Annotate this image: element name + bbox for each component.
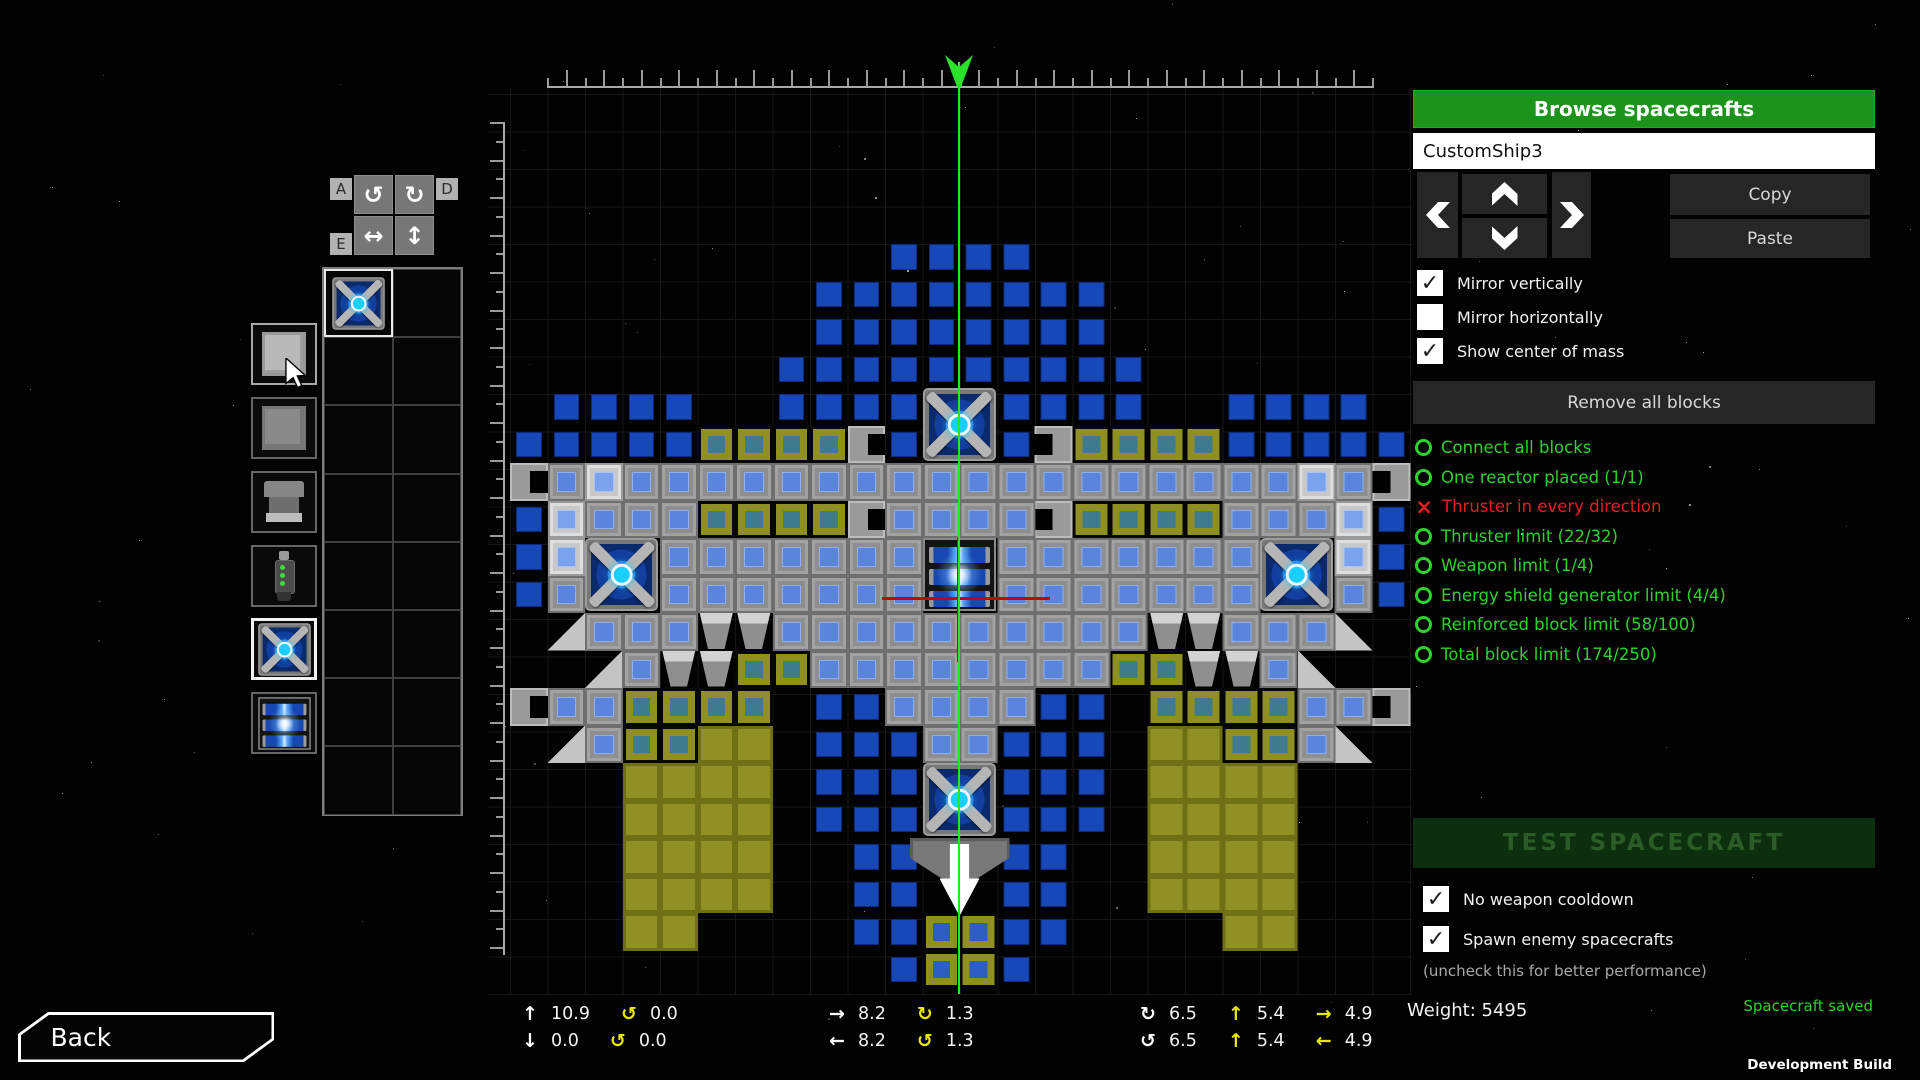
armored-hull[interactable] xyxy=(1148,463,1186,501)
armored-hull[interactable] xyxy=(735,463,773,501)
armored-hull[interactable] xyxy=(848,651,886,689)
armored-hull[interactable] xyxy=(810,613,848,651)
blue-block[interactable] xyxy=(1035,726,1073,764)
blue-block[interactable] xyxy=(998,426,1036,464)
olive-block[interactable] xyxy=(1223,913,1261,951)
remove-all-blocks-button[interactable]: Remove all blocks xyxy=(1413,381,1875,424)
blue-block[interactable] xyxy=(810,276,848,314)
inventory-cell-empty[interactable] xyxy=(324,405,393,473)
armored-hull[interactable] xyxy=(735,576,773,614)
armored-hull[interactable] xyxy=(885,463,923,501)
blue-block[interactable] xyxy=(773,351,811,389)
armored-hull[interactable] xyxy=(660,576,698,614)
blue-block[interactable] xyxy=(848,876,886,914)
thruster-olive[interactable] xyxy=(1148,501,1186,539)
blue-block[interactable] xyxy=(923,351,961,389)
thruster-olive[interactable] xyxy=(773,501,811,539)
blue-block[interactable] xyxy=(998,388,1036,426)
blue-block[interactable] xyxy=(1073,726,1111,764)
inventory-cell-empty[interactable] xyxy=(324,610,393,678)
armored-hull[interactable] xyxy=(885,651,923,689)
energy-shield-generator-block[interactable] xyxy=(585,538,658,611)
side-nozzle[interactable] xyxy=(1035,501,1073,539)
blue-block[interactable] xyxy=(1335,388,1373,426)
blue-block[interactable] xyxy=(960,351,998,389)
next-ship-button[interactable] xyxy=(1552,172,1591,258)
thruster-olive[interactable] xyxy=(660,688,698,726)
armored-hull[interactable] xyxy=(1335,463,1373,501)
armored-hull[interactable] xyxy=(585,688,623,726)
armored-hull[interactable] xyxy=(810,538,848,576)
inventory-cell-empty[interactable] xyxy=(393,269,462,337)
inventory-cell-empty[interactable] xyxy=(324,678,393,746)
armored-hull[interactable] xyxy=(1073,538,1111,576)
inventory-cell-empty[interactable] xyxy=(393,405,462,473)
blue-block[interactable] xyxy=(1035,913,1073,951)
blue-block[interactable] xyxy=(585,388,623,426)
light-hull[interactable] xyxy=(1298,463,1336,501)
blue-block[interactable] xyxy=(848,801,886,839)
armored-hull[interactable] xyxy=(960,501,998,539)
side-nozzle[interactable] xyxy=(1373,463,1411,501)
blue-block[interactable] xyxy=(848,688,886,726)
side-nozzle[interactable] xyxy=(848,501,886,539)
olive-block[interactable] xyxy=(1185,838,1223,876)
armored-hull[interactable] xyxy=(1223,538,1261,576)
blue-block[interactable] xyxy=(548,388,586,426)
blue-block[interactable] xyxy=(510,576,548,614)
thruster-olive[interactable] xyxy=(735,426,773,464)
blue-block[interactable] xyxy=(1035,763,1073,801)
armored-hull[interactable] xyxy=(885,501,923,539)
blue-block[interactable] xyxy=(1035,351,1073,389)
palette-item-thruster[interactable] xyxy=(251,471,317,533)
armored-hull[interactable] xyxy=(810,576,848,614)
armored-hull[interactable] xyxy=(1035,463,1073,501)
blue-block[interactable] xyxy=(623,388,661,426)
thruster-olive[interactable] xyxy=(1260,726,1298,764)
blue-block[interactable] xyxy=(1073,763,1111,801)
blue-block[interactable] xyxy=(885,313,923,351)
armored-hull[interactable] xyxy=(773,463,811,501)
armored-hull[interactable] xyxy=(923,613,961,651)
flip-vertical-button[interactable]: ↕ xyxy=(395,216,434,255)
blue-block[interactable] xyxy=(998,763,1036,801)
olive-block[interactable] xyxy=(698,838,736,876)
armored-hull[interactable] xyxy=(585,613,623,651)
blue-block[interactable] xyxy=(848,313,886,351)
olive-block[interactable] xyxy=(1260,838,1298,876)
armored-hull[interactable] xyxy=(1148,576,1186,614)
blue-block[interactable] xyxy=(885,388,923,426)
blue-block[interactable] xyxy=(810,801,848,839)
test-spacecraft-button[interactable]: TEST SPACECRAFT xyxy=(1413,818,1875,868)
ship-name-input[interactable] xyxy=(1413,133,1875,169)
paste-button[interactable]: Paste xyxy=(1670,219,1870,258)
thruster-olive[interactable] xyxy=(1260,688,1298,726)
thruster-olive[interactable] xyxy=(810,501,848,539)
armored-hull[interactable] xyxy=(698,538,736,576)
armored-hull[interactable] xyxy=(923,688,961,726)
armored-hull[interactable] xyxy=(1298,688,1336,726)
blue-block[interactable] xyxy=(1035,313,1073,351)
armored-hull[interactable] xyxy=(623,501,661,539)
blue-block[interactable] xyxy=(885,426,923,464)
armored-hull[interactable] xyxy=(660,613,698,651)
olive-block[interactable] xyxy=(660,838,698,876)
armored-hull[interactable] xyxy=(1073,651,1111,689)
blue-block[interactable] xyxy=(1373,576,1411,614)
armored-hull[interactable] xyxy=(1335,688,1373,726)
blue-block[interactable] xyxy=(773,388,811,426)
blue-block[interactable] xyxy=(998,238,1036,276)
olive-block[interactable] xyxy=(698,876,736,914)
armored-hull[interactable] xyxy=(585,501,623,539)
blue-block[interactable] xyxy=(810,763,848,801)
blue-block[interactable] xyxy=(998,951,1036,989)
blue-block[interactable] xyxy=(998,313,1036,351)
olive-block[interactable] xyxy=(623,838,661,876)
armored-hull[interactable] xyxy=(773,576,811,614)
blue-block[interactable] xyxy=(1035,688,1073,726)
side-nozzle[interactable] xyxy=(510,688,548,726)
armored-hull[interactable] xyxy=(1223,576,1261,614)
blue-block[interactable] xyxy=(998,801,1036,839)
olive-armored[interactable] xyxy=(923,951,961,989)
armored-hull[interactable] xyxy=(960,613,998,651)
armored-hull[interactable] xyxy=(998,688,1036,726)
armored-hull[interactable] xyxy=(923,463,961,501)
thruster-olive[interactable] xyxy=(1148,426,1186,464)
blue-block[interactable] xyxy=(1373,426,1411,464)
armored-hull[interactable] xyxy=(998,576,1036,614)
side-nozzle[interactable] xyxy=(848,426,886,464)
olive-block[interactable] xyxy=(1223,763,1261,801)
armored-hull[interactable] xyxy=(1185,538,1223,576)
blue-block[interactable] xyxy=(998,726,1036,764)
olive-block[interactable] xyxy=(1260,801,1298,839)
armored-hull[interactable] xyxy=(1185,576,1223,614)
thruster-olive[interactable] xyxy=(1148,688,1186,726)
olive-block[interactable] xyxy=(1260,763,1298,801)
blue-block[interactable] xyxy=(848,388,886,426)
blue-block[interactable] xyxy=(998,876,1036,914)
inventory-cell-empty[interactable] xyxy=(393,474,462,542)
blue-block[interactable] xyxy=(885,238,923,276)
light-hull[interactable] xyxy=(548,538,586,576)
thruster-olive[interactable] xyxy=(1223,688,1261,726)
thruster-olive[interactable] xyxy=(623,726,661,764)
armored-hull[interactable] xyxy=(960,651,998,689)
browse-spacecrafts-button[interactable]: Browse spacecrafts xyxy=(1413,90,1875,128)
blue-block[interactable] xyxy=(510,538,548,576)
olive-block[interactable] xyxy=(623,801,661,839)
thruster-olive[interactable] xyxy=(1223,726,1261,764)
olive-block[interactable] xyxy=(660,913,698,951)
blue-block[interactable] xyxy=(960,238,998,276)
armored-hull[interactable] xyxy=(548,463,586,501)
armored-hull[interactable] xyxy=(1298,726,1336,764)
thruster-olive[interactable] xyxy=(735,501,773,539)
armored-hull[interactable] xyxy=(998,501,1036,539)
armored-hull[interactable] xyxy=(960,688,998,726)
blue-block[interactable] xyxy=(848,351,886,389)
blue-block[interactable] xyxy=(885,726,923,764)
armored-hull[interactable] xyxy=(810,463,848,501)
armored-hull[interactable] xyxy=(735,538,773,576)
armored-hull[interactable] xyxy=(698,576,736,614)
armored-hull[interactable] xyxy=(848,463,886,501)
inventory-grid[interactable] xyxy=(322,267,463,816)
thruster-olive[interactable] xyxy=(1110,501,1148,539)
checkbox-unchecked[interactable]: ✓ xyxy=(1417,304,1443,330)
back-button[interactable]: Back xyxy=(18,1012,274,1062)
armored-hull[interactable] xyxy=(960,726,998,764)
armored-hull[interactable] xyxy=(923,726,961,764)
blue-block[interactable] xyxy=(810,688,848,726)
side-nozzle[interactable] xyxy=(1035,426,1073,464)
checkbox-checked[interactable]: ✓ xyxy=(1417,338,1443,364)
thruster-olive[interactable] xyxy=(1185,501,1223,539)
armored-hull[interactable] xyxy=(660,538,698,576)
olive-block[interactable] xyxy=(1185,876,1223,914)
armored-hull[interactable] xyxy=(885,613,923,651)
armored-hull[interactable] xyxy=(623,613,661,651)
blue-block[interactable] xyxy=(548,426,586,464)
armored-hull[interactable] xyxy=(1335,576,1373,614)
armored-hull[interactable] xyxy=(1035,651,1073,689)
olive-block[interactable] xyxy=(1185,763,1223,801)
olive-block[interactable] xyxy=(698,763,736,801)
blue-block[interactable] xyxy=(810,351,848,389)
blue-block[interactable] xyxy=(848,763,886,801)
inventory-cell-empty[interactable] xyxy=(393,678,462,746)
side-nozzle[interactable] xyxy=(1373,688,1411,726)
armored-hull[interactable] xyxy=(698,463,736,501)
armored-hull[interactable] xyxy=(1073,576,1111,614)
olive-block[interactable] xyxy=(735,876,773,914)
inventory-cell-empty[interactable] xyxy=(393,542,462,610)
olive-block[interactable] xyxy=(735,726,773,764)
blue-block[interactable] xyxy=(1035,801,1073,839)
blue-block[interactable] xyxy=(585,426,623,464)
olive-block[interactable] xyxy=(735,801,773,839)
blue-block[interactable] xyxy=(1073,313,1111,351)
olive-block[interactable] xyxy=(698,801,736,839)
thruster-olive[interactable] xyxy=(773,426,811,464)
armored-hull[interactable] xyxy=(1110,538,1148,576)
blue-block[interactable] xyxy=(810,726,848,764)
blue-block[interactable] xyxy=(885,951,923,989)
flip-horizontal-button[interactable]: ↔ xyxy=(354,216,393,255)
thruster-olive[interactable] xyxy=(698,426,736,464)
olive-block[interactable] xyxy=(735,838,773,876)
thruster-olive[interactable] xyxy=(1110,651,1148,689)
blue-block[interactable] xyxy=(885,276,923,314)
olive-block[interactable] xyxy=(660,763,698,801)
olive-block[interactable] xyxy=(1260,876,1298,914)
armored-hull[interactable] xyxy=(1110,463,1148,501)
thruster-olive[interactable] xyxy=(1148,651,1186,689)
blue-block[interactable] xyxy=(885,763,923,801)
armored-hull[interactable] xyxy=(660,463,698,501)
blue-block[interactable] xyxy=(1073,801,1111,839)
armored-hull[interactable] xyxy=(1035,538,1073,576)
armored-hull[interactable] xyxy=(1260,651,1298,689)
blue-block[interactable] xyxy=(1035,276,1073,314)
armored-hull[interactable] xyxy=(773,538,811,576)
inventory-cell-empty[interactable] xyxy=(324,542,393,610)
armored-hull[interactable] xyxy=(623,463,661,501)
blue-block[interactable] xyxy=(623,426,661,464)
blue-block[interactable] xyxy=(998,276,1036,314)
olive-block[interactable] xyxy=(1148,763,1186,801)
armored-hull[interactable] xyxy=(660,501,698,539)
olive-block[interactable] xyxy=(660,801,698,839)
armored-hull[interactable] xyxy=(848,613,886,651)
armored-hull[interactable] xyxy=(998,463,1036,501)
armored-hull[interactable] xyxy=(810,651,848,689)
armored-hull[interactable] xyxy=(1260,463,1298,501)
thruster-olive[interactable] xyxy=(698,688,736,726)
armored-hull[interactable] xyxy=(1035,613,1073,651)
palette-item-reinforced-block[interactable] xyxy=(251,397,317,459)
olive-block[interactable] xyxy=(1260,913,1298,951)
armored-hull[interactable] xyxy=(1223,463,1261,501)
armored-hull[interactable] xyxy=(1298,501,1336,539)
armored-hull[interactable] xyxy=(848,576,886,614)
light-hull[interactable] xyxy=(1335,538,1373,576)
armored-hull[interactable] xyxy=(960,463,998,501)
armored-hull[interactable] xyxy=(623,651,661,689)
thruster-olive[interactable] xyxy=(698,501,736,539)
blue-block[interactable] xyxy=(998,351,1036,389)
blue-block[interactable] xyxy=(660,388,698,426)
olive-block[interactable] xyxy=(1223,801,1261,839)
armored-hull[interactable] xyxy=(848,538,886,576)
olive-block[interactable] xyxy=(660,876,698,914)
blue-block[interactable] xyxy=(1335,426,1373,464)
inventory-cell-empty[interactable] xyxy=(324,474,393,542)
armored-hull[interactable] xyxy=(1260,613,1298,651)
thruster-olive[interactable] xyxy=(1110,426,1148,464)
armored-hull[interactable] xyxy=(1298,613,1336,651)
rotate-cw-button[interactable]: ↻ xyxy=(395,175,434,214)
blue-block[interactable] xyxy=(1110,351,1148,389)
blue-block[interactable] xyxy=(960,276,998,314)
palette-item-energy-shield-generator[interactable] xyxy=(251,618,317,680)
olive-block[interactable] xyxy=(1185,801,1223,839)
checkbox-checked[interactable]: ✓ xyxy=(1423,926,1449,952)
blue-block[interactable] xyxy=(1260,388,1298,426)
rotate-ccw-button[interactable]: ↺ xyxy=(354,175,393,214)
armored-hull[interactable] xyxy=(1110,613,1148,651)
thruster-olive[interactable] xyxy=(735,651,773,689)
side-nozzle[interactable] xyxy=(510,463,548,501)
armored-hull[interactable] xyxy=(548,576,586,614)
inventory-cell-empty[interactable] xyxy=(393,610,462,678)
blue-block[interactable] xyxy=(885,351,923,389)
blue-block[interactable] xyxy=(1373,501,1411,539)
blue-block[interactable] xyxy=(848,276,886,314)
move-up-button[interactable] xyxy=(1462,174,1547,214)
armored-hull[interactable] xyxy=(885,538,923,576)
checkbox-checked[interactable]: ✓ xyxy=(1417,270,1443,296)
olive-block[interactable] xyxy=(1223,838,1261,876)
blue-block[interactable] xyxy=(1298,388,1336,426)
light-hull[interactable] xyxy=(1335,501,1373,539)
olive-block[interactable] xyxy=(1148,876,1186,914)
armored-hull[interactable] xyxy=(1073,613,1111,651)
olive-block[interactable] xyxy=(1185,726,1223,764)
move-down-button[interactable] xyxy=(1462,218,1547,258)
blue-block[interactable] xyxy=(960,313,998,351)
thruster-olive[interactable] xyxy=(735,688,773,726)
thruster-olive[interactable] xyxy=(660,726,698,764)
blue-block[interactable] xyxy=(885,876,923,914)
blue-block[interactable] xyxy=(1073,688,1111,726)
olive-armored[interactable] xyxy=(960,951,998,989)
energy-shield-generator-block[interactable] xyxy=(1260,538,1333,611)
blue-block[interactable] xyxy=(1223,426,1261,464)
armored-hull[interactable] xyxy=(923,501,961,539)
armored-hull[interactable] xyxy=(1073,463,1111,501)
armored-hull[interactable] xyxy=(1260,501,1298,539)
armored-hull[interactable] xyxy=(1148,538,1186,576)
blue-block[interactable] xyxy=(810,313,848,351)
blue-block[interactable] xyxy=(885,801,923,839)
checkbox-checked[interactable]: ✓ xyxy=(1423,886,1449,912)
olive-block[interactable] xyxy=(1148,801,1186,839)
thruster-olive[interactable] xyxy=(1185,426,1223,464)
blue-block[interactable] xyxy=(1073,276,1111,314)
olive-block[interactable] xyxy=(623,763,661,801)
armored-hull[interactable] xyxy=(998,613,1036,651)
olive-armored[interactable] xyxy=(923,913,961,951)
prev-ship-button[interactable] xyxy=(1417,172,1458,258)
olive-block[interactable] xyxy=(623,913,661,951)
olive-block[interactable] xyxy=(1148,838,1186,876)
blue-block[interactable] xyxy=(510,501,548,539)
blue-block[interactable] xyxy=(1073,388,1111,426)
armored-hull[interactable] xyxy=(1223,613,1261,651)
olive-block[interactable] xyxy=(1223,876,1261,914)
thruster-olive[interactable] xyxy=(1185,688,1223,726)
armored-hull[interactable] xyxy=(998,651,1036,689)
inventory-cell-empty[interactable] xyxy=(393,337,462,405)
blue-block[interactable] xyxy=(885,913,923,951)
blue-block[interactable] xyxy=(510,426,548,464)
blue-block[interactable] xyxy=(1073,351,1111,389)
armored-hull[interactable] xyxy=(585,726,623,764)
palette-item-weapon-gun[interactable] xyxy=(251,545,317,607)
blue-block[interactable] xyxy=(1223,388,1261,426)
olive-block[interactable] xyxy=(735,763,773,801)
armored-hull[interactable] xyxy=(885,576,923,614)
olive-block[interactable] xyxy=(623,876,661,914)
olive-armored[interactable] xyxy=(960,913,998,951)
blue-block[interactable] xyxy=(810,388,848,426)
blue-block[interactable] xyxy=(1035,838,1073,876)
thruster-olive[interactable] xyxy=(623,688,661,726)
blue-block[interactable] xyxy=(1035,876,1073,914)
armored-hull[interactable] xyxy=(923,651,961,689)
thruster-olive[interactable] xyxy=(1073,501,1111,539)
inventory-cell-empty[interactable] xyxy=(393,746,462,814)
blue-block[interactable] xyxy=(1110,388,1148,426)
blue-block[interactable] xyxy=(923,276,961,314)
blue-block[interactable] xyxy=(848,913,886,951)
